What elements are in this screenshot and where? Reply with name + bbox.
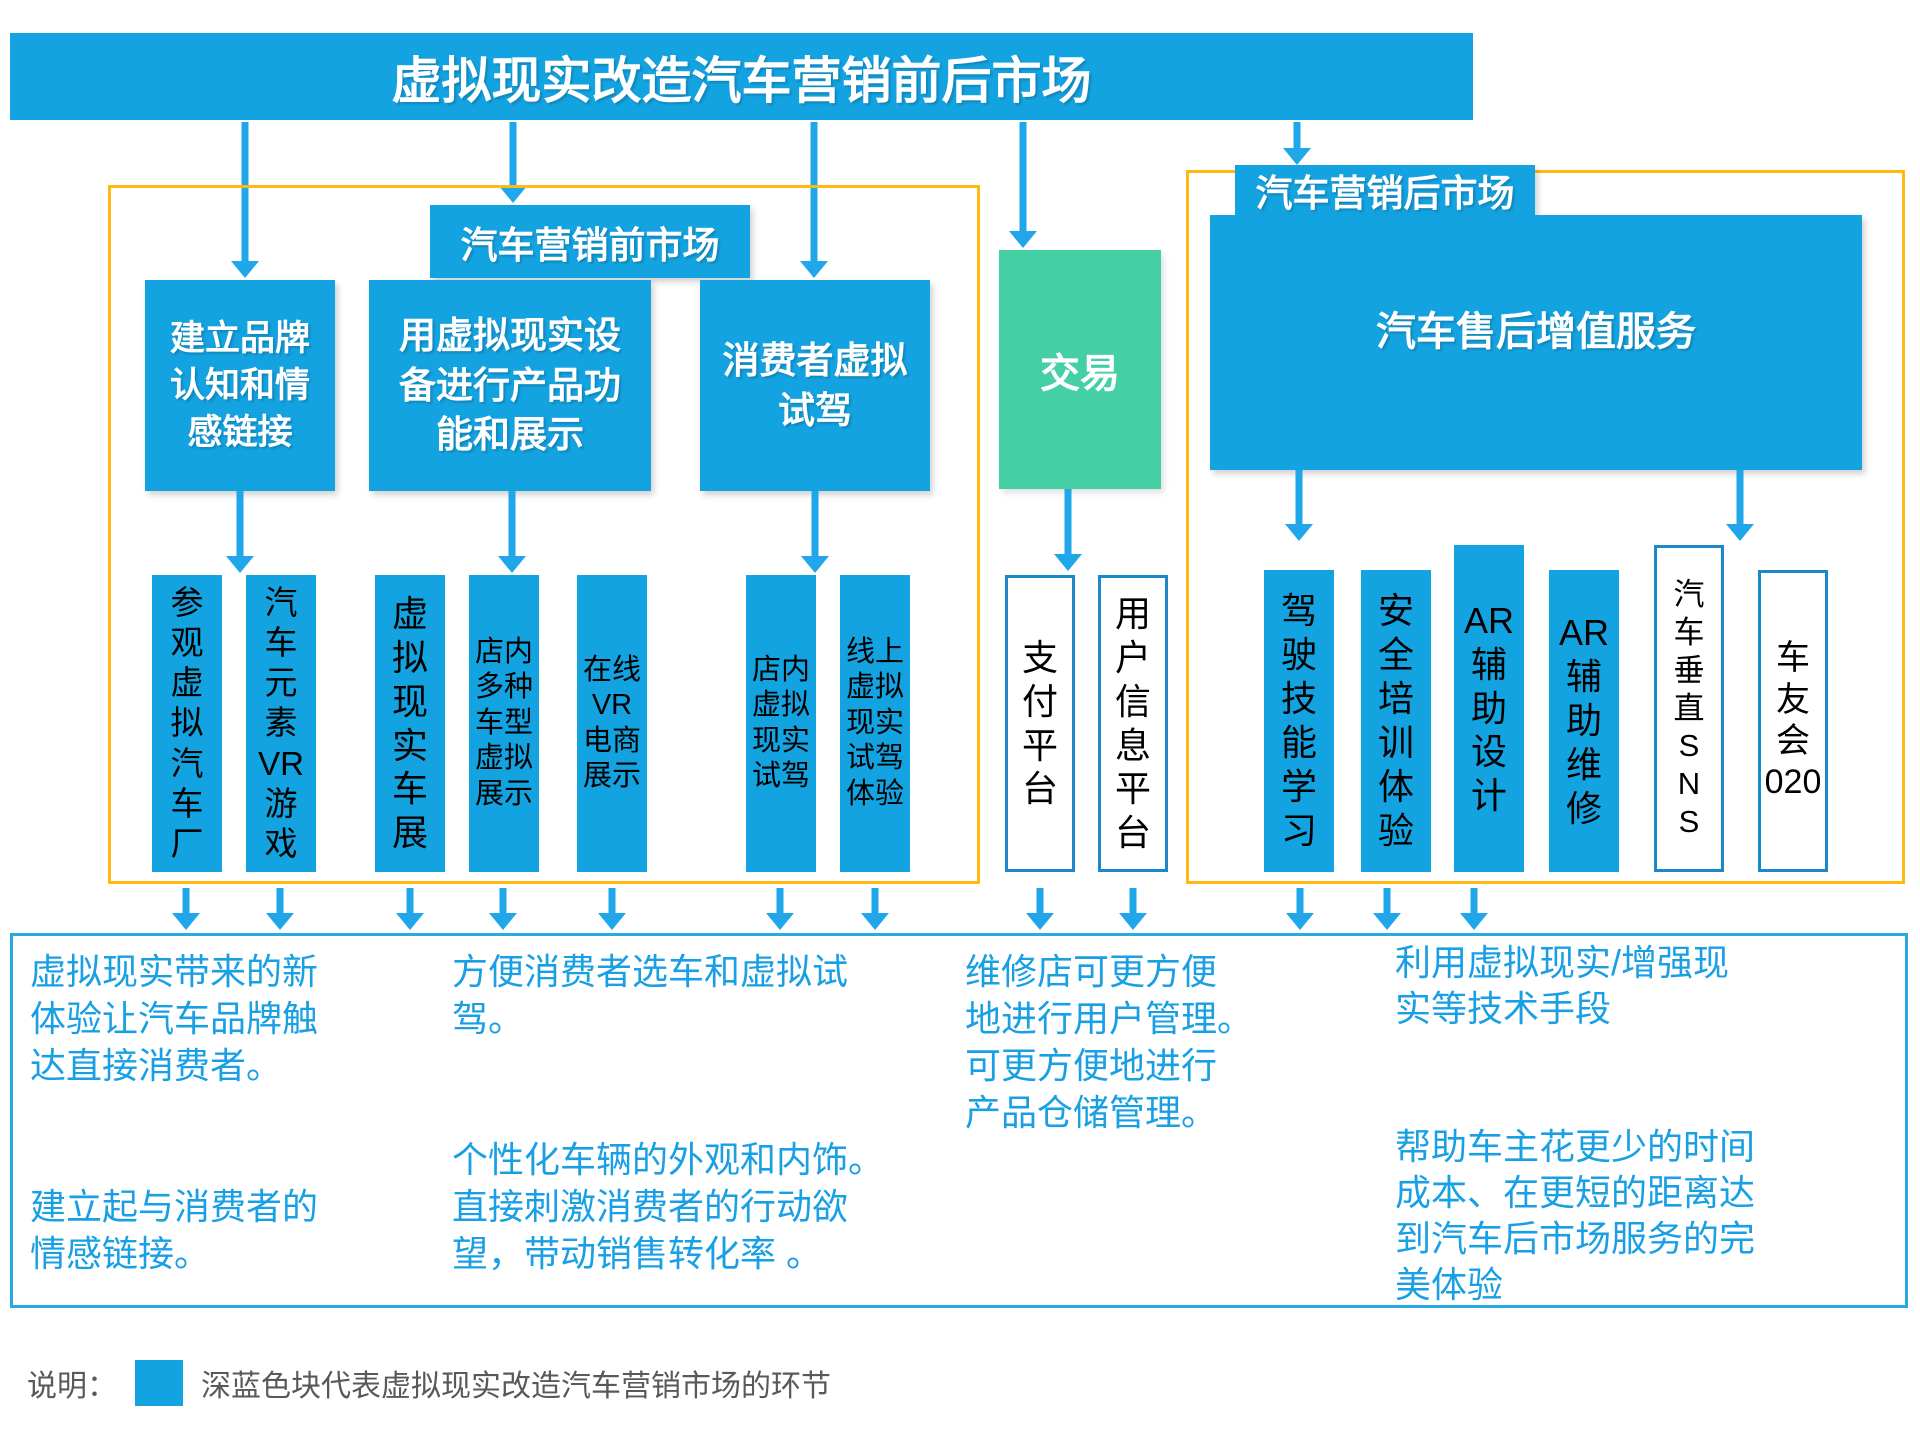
flow-arrow-icon xyxy=(172,888,200,930)
flow-arrow-icon xyxy=(1054,489,1082,571)
pre-market-item-vr-auto-show: 虚 拟 现 实 车 展 xyxy=(375,575,445,872)
flow-arrow-icon xyxy=(1726,470,1754,541)
legend-color-swatch xyxy=(135,1360,183,1406)
post-market-header-label: 汽车营销后市场 xyxy=(1256,163,1515,217)
flow-arrow-icon xyxy=(1283,122,1311,165)
pre-market-item-instore-vr-testdrive: 店内 虚拟 现实 试驾 xyxy=(746,575,816,872)
note-car-selection: 方便消费者选车和虚拟试 驾。 个性化车辆的外观和内饰。 直接刺激消费者的行动欲 … xyxy=(452,948,912,1277)
pre-market-item-instore-models: 店内 多种 车型 虚拟 展示 xyxy=(469,575,539,872)
note-vr-ar-benefits: 利用虚拟现实/增强现 实等技术手段 帮助车主花更少的时间 成本、在更短的距离达 … xyxy=(1395,940,1885,1308)
flow-arrow-icon xyxy=(489,888,517,930)
flow-arrow-icon xyxy=(598,888,626,930)
pre-market-item-online-vr-ecommerce: 在线 VR 电商 展示 xyxy=(577,575,647,872)
post-market-item-car-club-o2o: 车 友 会 020 xyxy=(1758,570,1828,872)
post-market-main-box-label: 汽车售后增值服务 xyxy=(1376,299,1696,357)
post-market-item-ar-assisted-repair: AR 辅 助 维 修 xyxy=(1549,570,1619,872)
pre-market-item-factory-tour: 参 观 虚 拟 汽 车 厂 xyxy=(152,575,222,872)
note-repair-management: 维修店可更方便 地进行用户管理。 可更方便地进行 产品仓储管理。 xyxy=(965,948,1365,1136)
legend-label: 深蓝色块代表虚拟现实改造汽车营销市场的环节 xyxy=(201,1361,831,1405)
transaction-item-payment-platform: 支 付 平 台 xyxy=(1005,575,1075,872)
post-market-header: 汽车营销后市场 xyxy=(1235,165,1535,215)
pre-market-box-test-drive: 消费者虚拟 试驾 xyxy=(700,280,930,491)
flow-arrow-icon xyxy=(1460,888,1488,930)
flow-arrow-icon xyxy=(801,491,829,573)
pre-market-box-vr-display: 用虚拟现实设 备进行产品功 能和展示 xyxy=(369,280,651,491)
flow-arrow-icon xyxy=(1119,888,1147,930)
post-market-item-safety-training: 安 全 培 训 体 验 xyxy=(1361,570,1431,872)
pre-market-item-online-vr-testdrive: 线上 虚拟 现实 试驾 体验 xyxy=(840,575,910,872)
flow-arrow-icon xyxy=(1286,888,1314,930)
flow-arrow-icon xyxy=(861,888,889,930)
flow-arrow-icon xyxy=(766,888,794,930)
flow-arrow-icon xyxy=(226,491,254,573)
flow-arrow-icon xyxy=(266,888,294,930)
post-market-item-driving-skills: 驾 驶 技 能 学 习 xyxy=(1264,570,1334,872)
transaction-item-user-info-platform: 用 户 信 息 平 台 xyxy=(1098,575,1168,872)
pre-market-header: 汽车营销前市场 xyxy=(430,205,750,278)
transaction-box: 交易 xyxy=(999,250,1161,489)
vr-auto-marketing-diagram: 虚拟现实改造汽车营销前后市场 汽车营销前市场 建立品牌 认知和情 感链接 用虚拟… xyxy=(0,0,1920,1440)
pre-market-header-label: 汽车营销前市场 xyxy=(461,215,720,269)
flow-arrow-icon xyxy=(1009,122,1037,248)
post-market-main-box: 汽车售后增值服务 xyxy=(1210,215,1862,470)
legend-prefix: 说明： xyxy=(27,1361,117,1405)
note-brand-connection: 虚拟现实带来的新 体验让汽车品牌触 达直接消费者。 建立起与消费者的 情感链接。 xyxy=(30,948,370,1277)
title-banner: 虚拟现实改造汽车营销前后市场 xyxy=(10,33,1473,120)
flow-arrow-icon xyxy=(498,491,526,573)
legend: 说明： 深蓝色块代表虚拟现实改造汽车营销市场的环节 xyxy=(27,1358,831,1408)
page-title: 虚拟现实改造汽车营销前后市场 xyxy=(392,41,1092,113)
post-market-item-auto-vertical-sns: 汽 车 垂 直 S N S xyxy=(1654,545,1724,872)
post-market-item-ar-assisted-design: AR 辅 助 设 计 xyxy=(1454,545,1524,872)
transaction-label: 交易 xyxy=(1040,341,1120,399)
flow-arrow-icon xyxy=(1285,470,1313,541)
flow-arrow-icon xyxy=(1373,888,1401,930)
pre-market-box-brand: 建立品牌 认知和情 感链接 xyxy=(145,280,335,491)
flow-arrow-icon xyxy=(396,888,424,930)
pre-market-item-vr-game: 汽 车 元 素 VR 游 戏 xyxy=(246,575,316,872)
flow-arrow-icon xyxy=(1026,888,1054,930)
